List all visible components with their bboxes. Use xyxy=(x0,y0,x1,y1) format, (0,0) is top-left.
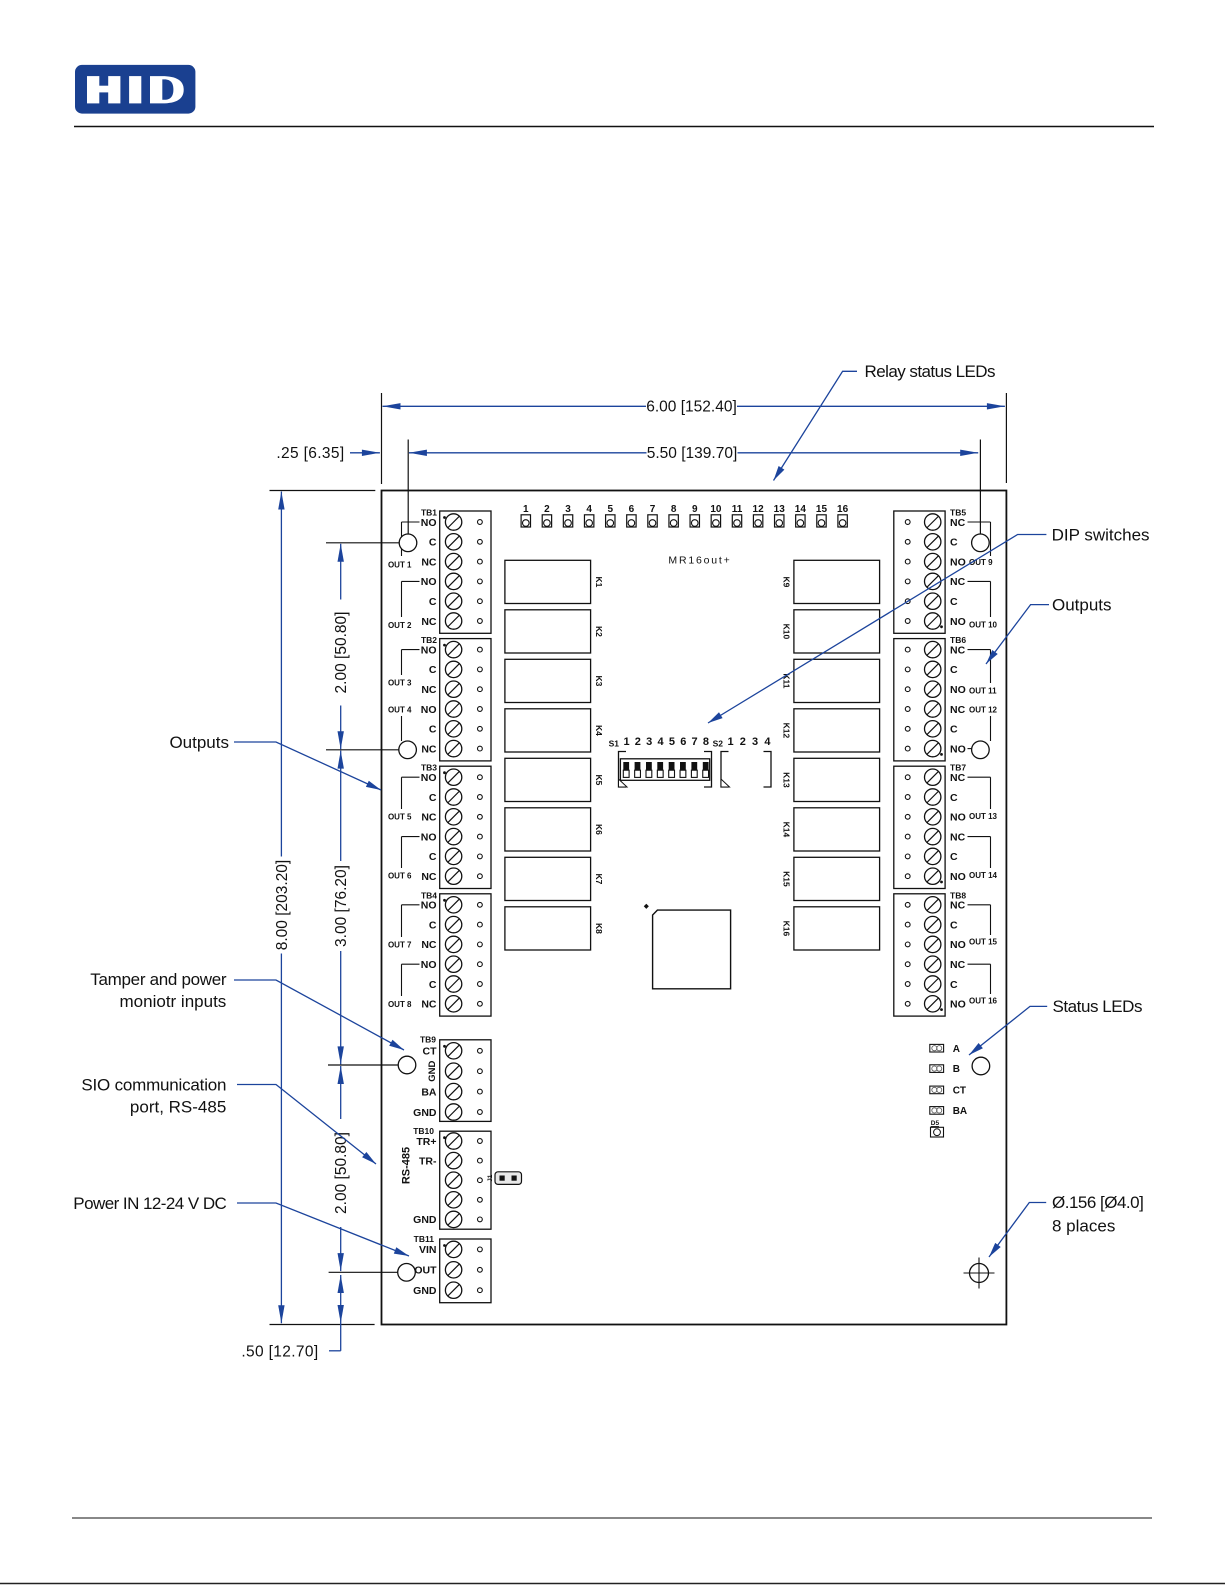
svg-text:2: 2 xyxy=(740,736,746,748)
svg-text:1: 1 xyxy=(727,736,733,748)
svg-text:B: B xyxy=(953,1064,960,1075)
svg-text:NO: NO xyxy=(950,616,966,628)
svg-text:NC: NC xyxy=(421,871,437,883)
svg-text:NO: NO xyxy=(421,704,437,716)
svg-text:C: C xyxy=(429,792,437,804)
svg-text:2: 2 xyxy=(635,736,641,748)
svg-text:NO: NO xyxy=(950,939,966,951)
svg-text:DIP switches: DIP switches xyxy=(1052,525,1150,544)
svg-text:C: C xyxy=(429,919,437,931)
svg-text:NO: NO xyxy=(421,517,437,529)
svg-text:OUT 7: OUT 7 xyxy=(388,941,412,950)
svg-text:NC: NC xyxy=(421,812,437,824)
svg-text:NO: NO xyxy=(421,831,437,843)
svg-text:K1: K1 xyxy=(594,576,604,587)
svg-text:Ø.156 [Ø4.0]: Ø.156 [Ø4.0] xyxy=(1052,1193,1143,1212)
svg-text:3: 3 xyxy=(752,736,758,748)
svg-text:C: C xyxy=(429,851,437,863)
svg-text:S2: S2 xyxy=(713,739,724,749)
svg-text:OUT 15: OUT 15 xyxy=(969,938,998,947)
svg-text:K4: K4 xyxy=(594,725,604,736)
svg-text:NC: NC xyxy=(421,556,437,568)
svg-text:NC: NC xyxy=(950,831,966,843)
svg-text:9: 9 xyxy=(692,504,698,515)
svg-text:16: 16 xyxy=(837,504,849,515)
svg-text:8 places: 8 places xyxy=(1052,1217,1115,1236)
svg-text:OUT 16: OUT 16 xyxy=(969,997,998,1006)
svg-text:MR16out+: MR16out+ xyxy=(668,555,731,567)
svg-text:NO: NO xyxy=(421,772,437,784)
svg-text:A: A xyxy=(953,1044,960,1055)
svg-text:NO: NO xyxy=(950,684,966,696)
svg-text:NO: NO xyxy=(950,871,966,883)
svg-text:NO: NO xyxy=(421,959,437,971)
svg-text:NC: NC xyxy=(421,743,437,755)
svg-text:3: 3 xyxy=(646,736,652,748)
svg-text:TB10: TB10 xyxy=(413,1126,434,1136)
svg-text:NO: NO xyxy=(421,900,437,912)
svg-text:S1: S1 xyxy=(609,739,620,749)
svg-text:1: 1 xyxy=(523,504,529,515)
svg-text:GND: GND xyxy=(413,1107,437,1119)
svg-text:TR+: TR+ xyxy=(416,1136,436,1148)
svg-text:Outputs: Outputs xyxy=(169,733,229,752)
svg-text:K7: K7 xyxy=(594,873,604,884)
svg-text:10: 10 xyxy=(710,504,722,515)
svg-text:BA: BA xyxy=(421,1086,437,1098)
svg-text:OUT 14: OUT 14 xyxy=(969,871,998,880)
svg-text:6.00 [152.40]: 6.00 [152.40] xyxy=(646,399,737,416)
svg-text:C: C xyxy=(429,596,437,608)
svg-text:C: C xyxy=(429,724,437,736)
svg-text:NC: NC xyxy=(950,900,966,912)
svg-text:K9: K9 xyxy=(782,576,792,587)
svg-text:NC: NC xyxy=(950,772,966,784)
svg-text:BA: BA xyxy=(953,1106,967,1117)
svg-text:NC: NC xyxy=(950,517,966,529)
svg-text:Relay status LEDs: Relay status LEDs xyxy=(865,362,996,381)
svg-text:K14: K14 xyxy=(782,822,792,838)
svg-text:Status LEDs: Status LEDs xyxy=(1053,997,1143,1016)
svg-text:15: 15 xyxy=(816,504,828,515)
svg-text:NC: NC xyxy=(950,704,966,716)
svg-text:3.00 [76.20]: 3.00 [76.20] xyxy=(333,865,350,947)
svg-text:4: 4 xyxy=(586,504,592,515)
svg-text:OUT 13: OUT 13 xyxy=(969,812,998,821)
svg-text:K13: K13 xyxy=(782,772,792,788)
svg-text:6: 6 xyxy=(629,504,635,515)
svg-text:OUT 12: OUT 12 xyxy=(969,705,998,714)
svg-text:K2: K2 xyxy=(594,626,604,637)
svg-text:K3: K3 xyxy=(594,675,604,686)
svg-text:K12: K12 xyxy=(782,723,792,739)
svg-text:TB9: TB9 xyxy=(420,1035,436,1045)
svg-text:OUT 10: OUT 10 xyxy=(969,621,998,630)
svg-text:TR-: TR- xyxy=(419,1155,437,1167)
svg-text:NC: NC xyxy=(950,644,966,656)
svg-text:C: C xyxy=(950,537,958,549)
svg-text:OUT 5: OUT 5 xyxy=(388,813,412,822)
svg-text:OUT 2: OUT 2 xyxy=(388,621,412,630)
svg-text:OUT 1: OUT 1 xyxy=(388,561,412,570)
svg-text:NO: NO xyxy=(421,644,437,656)
svg-text:OUT 6: OUT 6 xyxy=(388,872,412,881)
svg-text:.50 [12.70]: .50 [12.70] xyxy=(241,1343,318,1360)
svg-text:14: 14 xyxy=(795,504,807,515)
svg-text:7: 7 xyxy=(692,736,698,748)
svg-text:Tamper and power: Tamper and power xyxy=(90,970,227,989)
svg-text:NO: NO xyxy=(421,576,437,588)
svg-text:C: C xyxy=(950,792,958,804)
svg-text:NC: NC xyxy=(950,959,966,971)
svg-text:OUT 3: OUT 3 xyxy=(388,679,412,688)
svg-text:6: 6 xyxy=(680,736,686,748)
svg-text:12: 12 xyxy=(753,504,765,515)
svg-text:11: 11 xyxy=(732,504,743,515)
svg-text:K16: K16 xyxy=(782,921,792,937)
svg-text:CT: CT xyxy=(953,1086,966,1097)
svg-text:NC: NC xyxy=(950,576,966,588)
svg-text:moniotr inputs: moniotr inputs xyxy=(120,992,227,1011)
svg-text:3: 3 xyxy=(565,504,571,515)
svg-text:NO: NO xyxy=(950,812,966,824)
svg-text:K10: K10 xyxy=(782,624,792,640)
svg-text:7: 7 xyxy=(650,504,656,515)
svg-text:GND: GND xyxy=(427,1061,438,1082)
svg-text:4: 4 xyxy=(764,736,771,748)
svg-text:8: 8 xyxy=(671,504,677,515)
svg-text:OUT 4: OUT 4 xyxy=(388,706,412,715)
svg-text:NC: NC xyxy=(421,684,437,696)
svg-text:NC: NC xyxy=(421,939,437,951)
svg-text:RS-485: RS-485 xyxy=(401,1147,413,1184)
svg-text:SIO communication: SIO communication xyxy=(81,1075,226,1094)
svg-text:2: 2 xyxy=(544,504,550,515)
svg-text:5.50 [139.70]: 5.50 [139.70] xyxy=(647,445,738,462)
svg-text:CT: CT xyxy=(423,1046,438,1058)
svg-text:C: C xyxy=(950,724,958,736)
svg-text:5: 5 xyxy=(607,504,613,515)
svg-text:Power IN 12-24 V DC: Power IN 12-24 V DC xyxy=(73,1194,226,1213)
svg-text:13: 13 xyxy=(774,504,786,515)
svg-text:J1: J1 xyxy=(487,1174,494,1182)
svg-text:NO: NO xyxy=(950,556,966,568)
svg-text:.25 [6.35]: .25 [6.35] xyxy=(276,445,344,462)
svg-text:port, RS-485: port, RS-485 xyxy=(130,1097,226,1116)
svg-text:C: C xyxy=(429,979,437,991)
svg-text:C: C xyxy=(950,851,958,863)
svg-text:K15: K15 xyxy=(782,871,792,887)
svg-text:TB11: TB11 xyxy=(414,1234,435,1244)
svg-text:8: 8 xyxy=(703,736,709,748)
svg-text:GND: GND xyxy=(413,1214,437,1226)
svg-text:NO: NO xyxy=(950,999,966,1011)
svg-text:C: C xyxy=(429,664,437,676)
svg-text:C: C xyxy=(950,919,958,931)
svg-text:2.00 [50.80]: 2.00 [50.80] xyxy=(333,612,350,694)
svg-text:5: 5 xyxy=(669,736,675,748)
svg-text:1: 1 xyxy=(623,736,629,748)
svg-text:VIN: VIN xyxy=(419,1244,437,1256)
svg-text:Outputs: Outputs xyxy=(1052,595,1112,614)
svg-text:C: C xyxy=(950,596,958,608)
svg-text:NO: NO xyxy=(950,743,966,755)
svg-text:8.00 [203.20]: 8.00 [203.20] xyxy=(274,860,291,951)
svg-text:4: 4 xyxy=(657,736,664,748)
svg-text:C: C xyxy=(950,664,958,676)
svg-text:K6: K6 xyxy=(594,824,604,835)
svg-text:K8: K8 xyxy=(594,923,604,934)
svg-text:GND: GND xyxy=(413,1285,437,1297)
svg-text:OUT 8: OUT 8 xyxy=(388,1000,412,1009)
svg-text:C: C xyxy=(950,979,958,991)
svg-text:NC: NC xyxy=(421,616,437,628)
svg-text:OUT 11: OUT 11 xyxy=(969,687,997,696)
svg-text:K5: K5 xyxy=(594,774,604,785)
svg-text:2.00 [50.80]: 2.00 [50.80] xyxy=(333,1132,350,1214)
svg-text:C: C xyxy=(429,537,437,549)
svg-text:NC: NC xyxy=(421,999,437,1011)
